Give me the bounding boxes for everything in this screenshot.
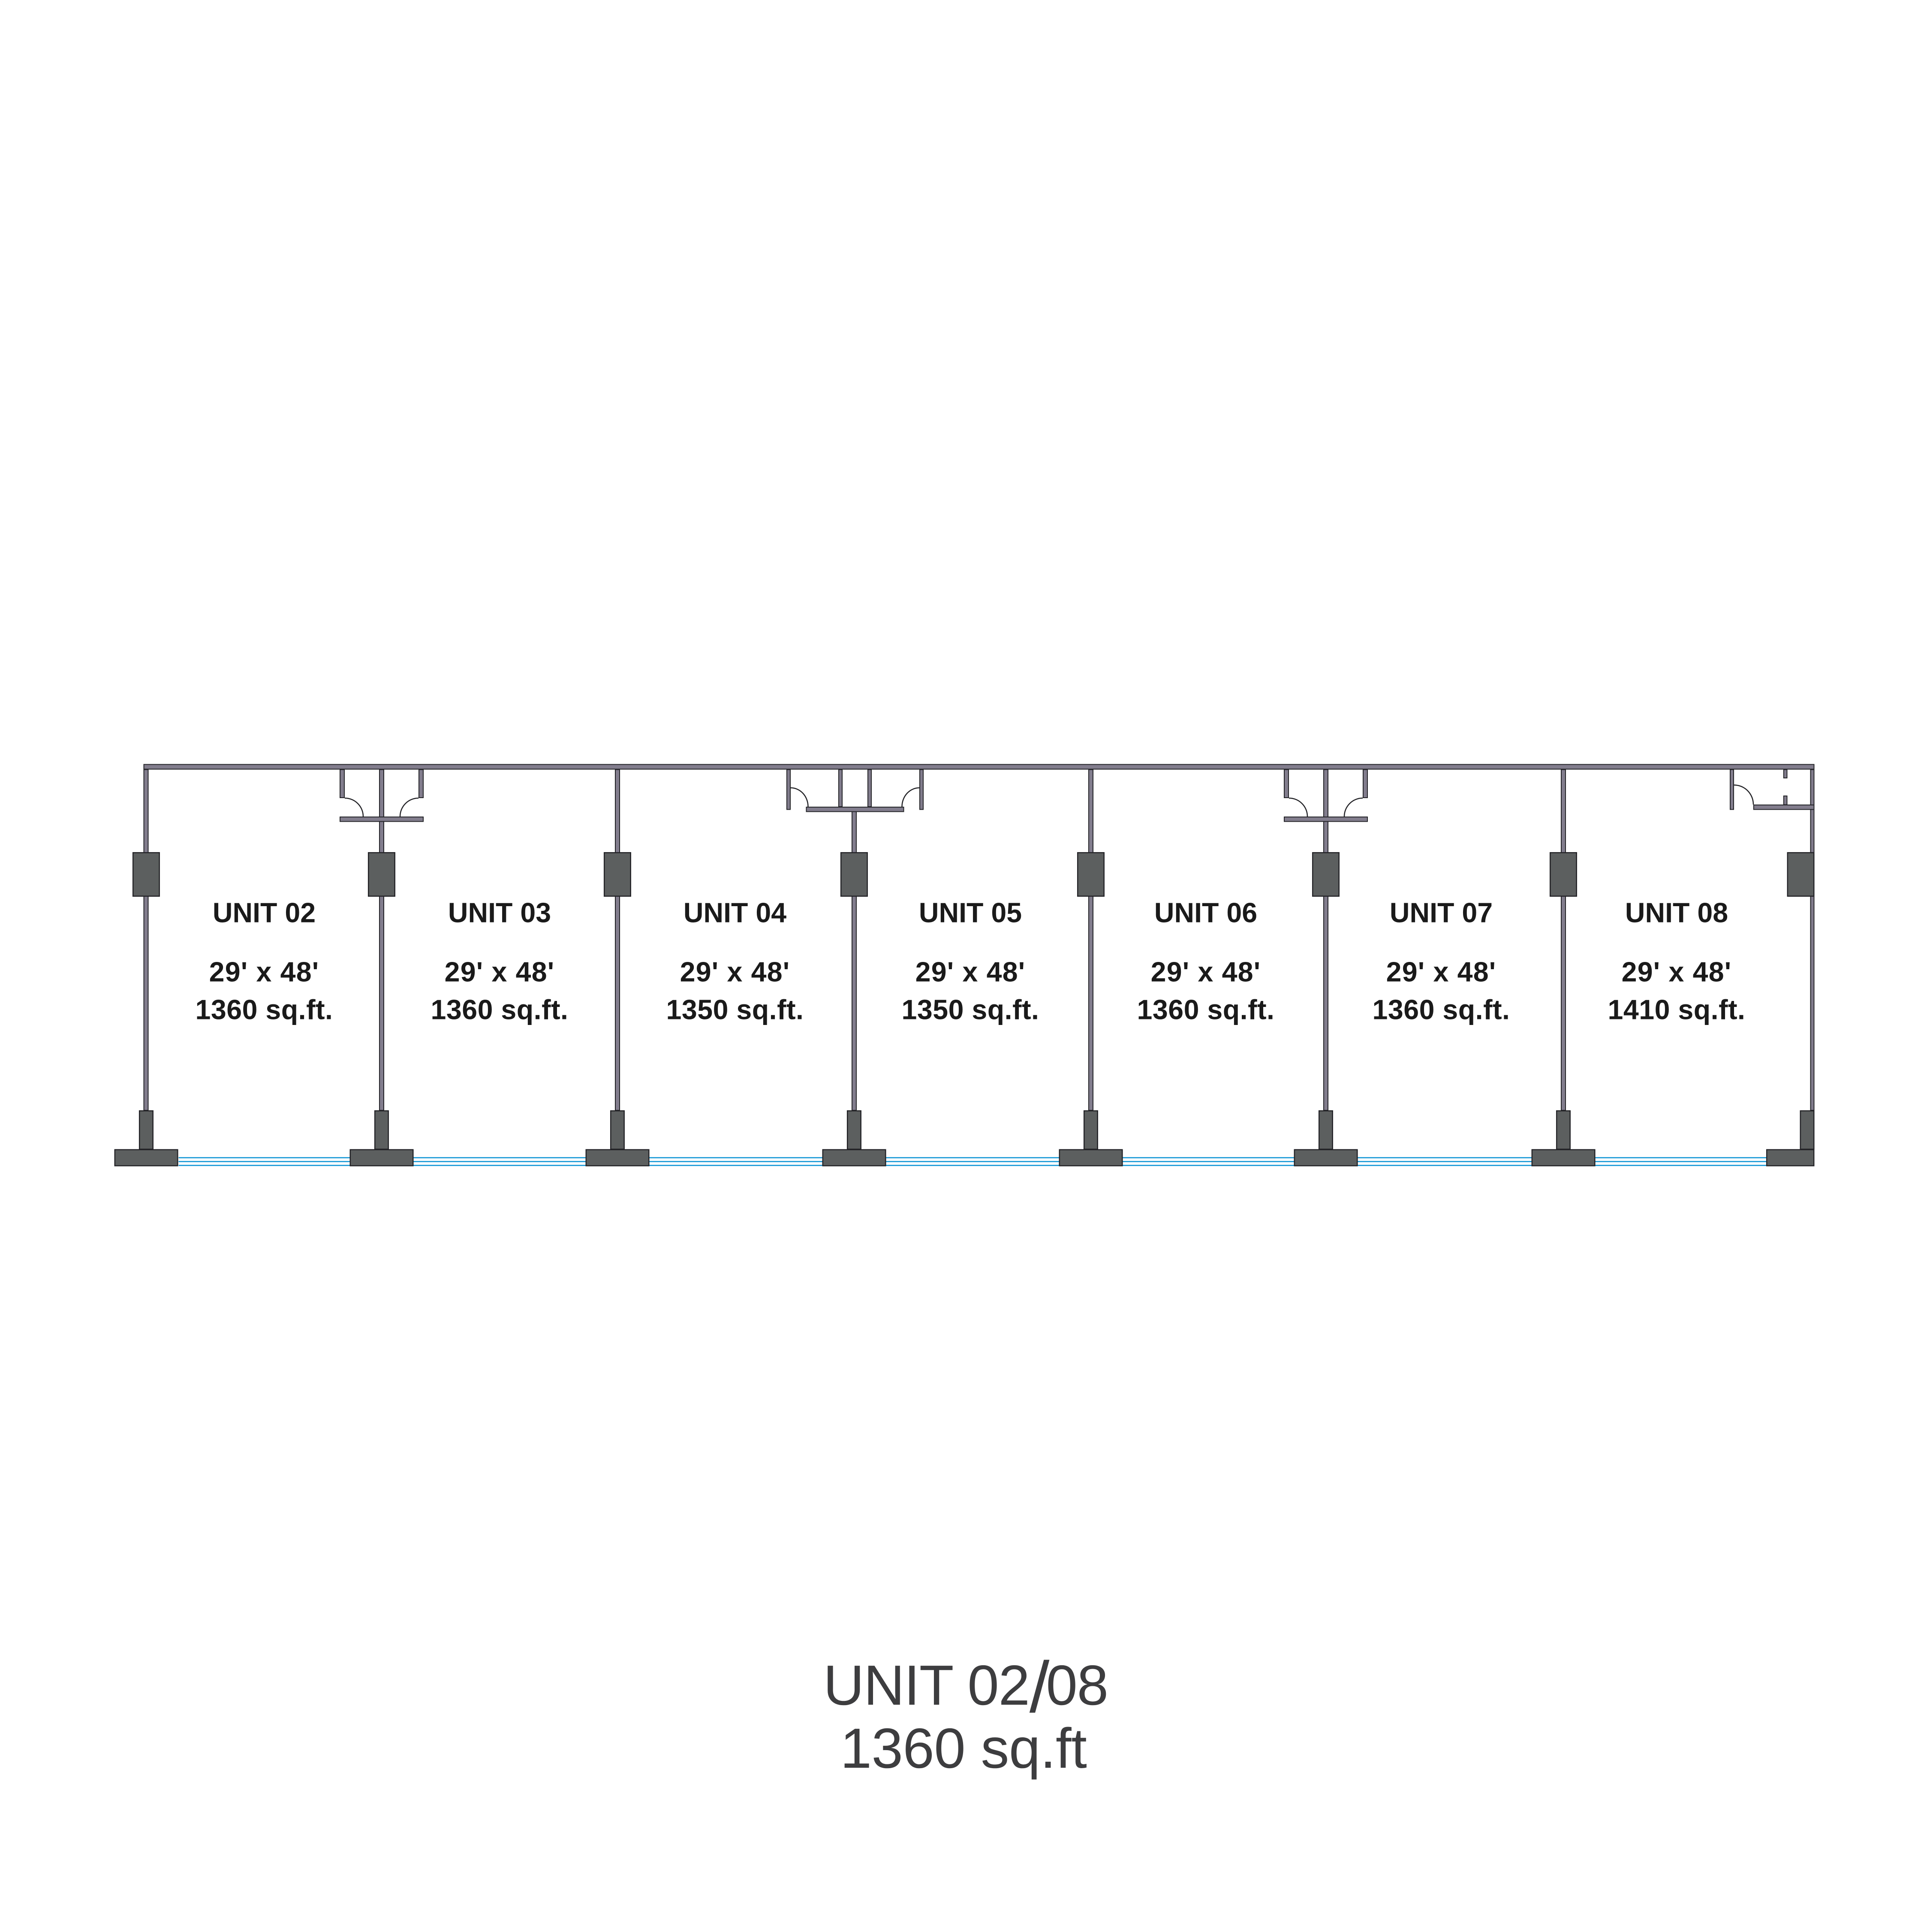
svg-text:29' x 48': 29' x 48' — [1622, 957, 1732, 988]
svg-text:1410 sq.ft.: 1410 sq.ft. — [1608, 995, 1746, 1025]
svg-text:UNIT 06: UNIT 06 — [1154, 898, 1257, 928]
svg-text:1350 sq.ft.: 1350 sq.ft. — [666, 995, 804, 1025]
svg-text:UNIT 04: UNIT 04 — [683, 898, 786, 928]
svg-text:29' x 48': 29' x 48' — [209, 957, 319, 988]
svg-text:1350 sq.ft.: 1350 sq.ft. — [902, 995, 1039, 1025]
svg-text:UNIT 02/08: UNIT 02/08 — [823, 1647, 1108, 1727]
svg-text:29' x 48': 29' x 48' — [680, 957, 790, 988]
svg-text:1360 sq.ft.: 1360 sq.ft. — [196, 995, 333, 1025]
svg-text:UNIT 05: UNIT 05 — [919, 898, 1022, 928]
svg-text:UNIT 08: UNIT 08 — [1625, 898, 1728, 928]
svg-text:1360 sq.ft.: 1360 sq.ft. — [1137, 995, 1275, 1025]
svg-text:1360 sq.ft.: 1360 sq.ft. — [1373, 995, 1510, 1025]
svg-text:1360 sq.ft.: 1360 sq.ft. — [431, 995, 569, 1025]
svg-text:29' x 48': 29' x 48' — [915, 957, 1026, 988]
svg-text:1360 sq.ft: 1360 sq.ft — [840, 1717, 1087, 1780]
svg-text:29' x 48': 29' x 48' — [445, 957, 555, 988]
svg-text:UNIT 07: UNIT 07 — [1390, 898, 1493, 928]
svg-text:29' x 48': 29' x 48' — [1386, 957, 1496, 988]
svg-text:UNIT 02: UNIT 02 — [213, 898, 316, 928]
svg-text:UNIT 03: UNIT 03 — [448, 898, 551, 928]
svg-text:29' x 48': 29' x 48' — [1151, 957, 1261, 988]
